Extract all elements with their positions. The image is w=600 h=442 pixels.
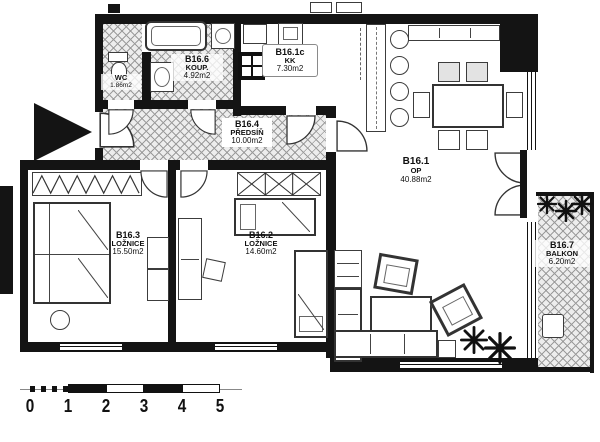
room-label-living: B16.1 OP 40.88m2 <box>392 156 440 185</box>
door-gap-bedroom3 <box>140 160 168 170</box>
shaft-box-1 <box>310 2 332 13</box>
scale-segment-dotted <box>30 386 68 392</box>
scale-tick-2: 2 <box>102 396 111 417</box>
plant-icon <box>571 193 593 215</box>
window-bedroom2 <box>215 343 277 351</box>
sofa-bottom-section <box>334 330 438 358</box>
stove-burner <box>253 67 262 76</box>
balcony-box <box>542 314 564 338</box>
bed-fold-line <box>282 202 310 232</box>
door-gap-bathroom <box>188 100 216 109</box>
dining-chair <box>438 130 460 150</box>
door-arc-bedroom2 <box>180 170 208 198</box>
wall-corner-topright <box>500 14 538 72</box>
washing-machine-drum <box>215 28 231 44</box>
shaft-box-2 <box>336 2 362 13</box>
toilet-tank <box>108 52 128 62</box>
room-label-balcony: B16.7 BALKON 6.20m2 <box>534 240 590 267</box>
room-label-hallway: B16.4 PŘEDSÍŇ 10.00m2 <box>222 118 272 147</box>
stove-burner <box>242 67 251 76</box>
scale-segment <box>182 384 220 393</box>
scale-segment <box>68 384 106 393</box>
dining-chair <box>413 92 430 118</box>
wall-balcony-right <box>590 192 594 373</box>
wall-neighbor-stub <box>0 186 13 294</box>
wall-roof-mark <box>108 4 120 13</box>
bed-fold-line <box>298 294 324 330</box>
door-arc-hall-living <box>336 120 368 152</box>
door-arc-wc <box>108 109 134 135</box>
room-label-bathroom: B16.6 KOUP. 4.92m2 <box>171 54 223 81</box>
wardrobe <box>32 172 142 196</box>
wall-mid-bedrooms <box>168 170 176 342</box>
dining-table <box>432 84 504 128</box>
scale-tick-0: 0 <box>26 396 35 417</box>
plant-icon <box>484 332 516 364</box>
door-gap-hall-living <box>326 118 336 152</box>
entrance-arrow-icon <box>34 103 92 161</box>
stove-burner <box>242 56 251 65</box>
kitchen-sink-basin <box>283 27 298 40</box>
scale-tick-5: 5 <box>216 396 225 417</box>
wall-bedrooms-top <box>20 160 336 170</box>
room-label-kitchen: B16.1c KK 7.30m2 <box>262 44 318 77</box>
scale-segment <box>106 384 144 393</box>
coffee-table <box>370 296 432 332</box>
door-arc-bedroom3 <box>140 170 168 198</box>
door-gap-wc <box>108 100 134 109</box>
side-table <box>438 340 456 358</box>
scale-tick-4: 4 <box>178 396 187 417</box>
balcony-door-leaf <box>520 150 527 218</box>
bathtub-inner <box>151 26 201 46</box>
stove-burner <box>253 56 262 65</box>
scale-tick-1: 1 <box>64 396 73 417</box>
wardrobe <box>237 172 321 196</box>
bar-stool <box>390 30 409 49</box>
door-arc-bathroom <box>190 109 216 135</box>
counter-dashed-line <box>360 28 361 80</box>
desk <box>178 218 202 300</box>
dining-chair <box>438 62 460 82</box>
kitchen-worktop <box>408 25 500 41</box>
scale-tick-3: 3 <box>140 396 149 417</box>
dining-chair <box>506 92 523 118</box>
floor-plan: WC 1.86m2 B16.6 KOUP. 4.92m2 B16.1c KK 7… <box>0 0 600 442</box>
bath-sink-basin <box>154 67 170 87</box>
desk-chair <box>202 258 226 282</box>
door-arc-kitchen <box>286 115 316 145</box>
window-living-right <box>527 72 536 150</box>
bar-stool <box>390 108 409 127</box>
scale-segment <box>144 384 182 393</box>
bedside-cabinet <box>147 269 169 301</box>
bar-stool <box>390 82 409 101</box>
bar-stool <box>390 56 409 75</box>
dining-chair <box>466 130 488 150</box>
dining-chair <box>466 62 488 82</box>
plant-icon <box>537 194 557 214</box>
wall-left-upper <box>95 14 103 112</box>
door-gap-bedroom2 <box>180 160 208 170</box>
scale-bar: 0 1 2 3 4 5 <box>0 376 260 436</box>
room-label-bedroom2: B16.2 LOŽNICE 14.60m2 <box>235 230 287 257</box>
shelf-unit <box>334 250 362 288</box>
room-label-wc: WC 1.86m2 <box>101 74 141 90</box>
door-gap-kitchen <box>286 106 316 115</box>
stool <box>50 310 70 330</box>
room-label-bedroom3: B16.3 LOŽNICE 15.50m2 <box>104 230 152 257</box>
armchair <box>373 253 419 295</box>
wall-balcony-bottom <box>536 367 594 372</box>
window-bedroom3 <box>60 343 122 351</box>
kitchen-counter-box <box>243 24 267 44</box>
bed-fold-line <box>78 258 108 298</box>
breakfast-bar <box>366 24 386 132</box>
wall-left-lower <box>20 160 28 352</box>
